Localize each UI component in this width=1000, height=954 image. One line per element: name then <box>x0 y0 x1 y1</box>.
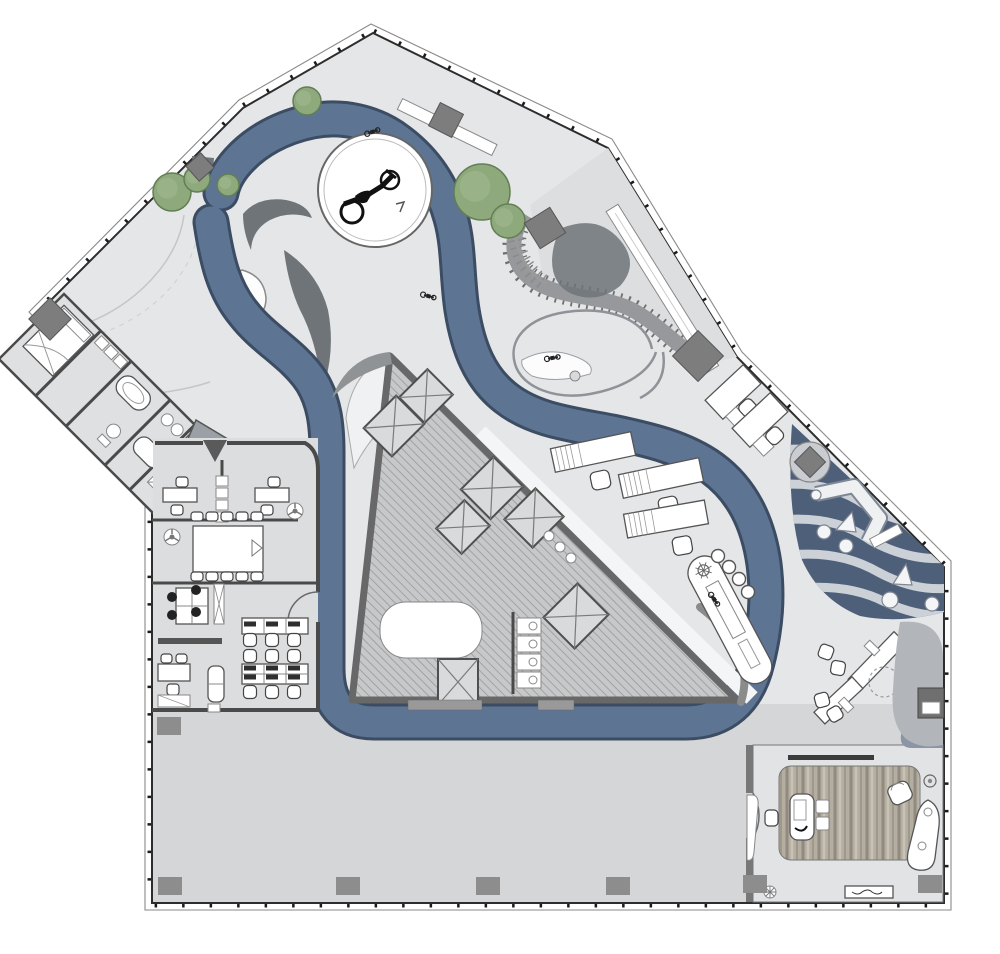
display-platform <box>318 133 432 247</box>
sofa-cushion-1 <box>924 808 932 816</box>
wc-stall <box>517 636 541 652</box>
office1-desk <box>163 488 197 502</box>
stool <box>712 550 725 563</box>
garden-stone <box>882 592 898 608</box>
office1-chair-a <box>176 477 188 487</box>
office2-desk <box>255 488 289 502</box>
wc-stall <box>517 672 541 688</box>
hall-column <box>743 875 767 893</box>
monitor <box>266 675 278 680</box>
wc-stall <box>517 654 541 670</box>
small-exec-desk <box>158 664 190 681</box>
meeting-chair <box>221 572 233 581</box>
task-chair <box>244 686 257 699</box>
floor-plan-svg <box>0 0 1000 954</box>
small-exec-chair-b <box>176 654 187 663</box>
monitor <box>244 666 256 671</box>
monitor <box>244 622 256 627</box>
counter-wall <box>158 638 222 644</box>
tree-icon <box>217 174 239 196</box>
meeting-chair <box>236 512 248 521</box>
meeting-chair <box>251 512 263 521</box>
hall-column <box>157 717 181 735</box>
stool <box>723 561 736 574</box>
fan-icon-1 <box>287 503 303 519</box>
wc-stall <box>517 618 541 634</box>
office-block <box>152 438 318 712</box>
task-chair <box>244 634 257 647</box>
door-sill-2 <box>538 700 574 710</box>
meeting-chair <box>191 512 203 521</box>
task-chair <box>244 650 257 663</box>
exec-side-table-1 <box>816 800 829 813</box>
meeting-chair <box>191 572 203 581</box>
exec-left-wall <box>746 745 753 793</box>
tree-icon <box>293 87 321 115</box>
equipment-nook-floor <box>893 622 944 747</box>
task-chair <box>266 634 279 647</box>
sofa-cushion-2 <box>918 842 926 850</box>
hall-column <box>336 877 360 895</box>
monitor <box>288 675 300 680</box>
cluster-chair <box>191 585 201 595</box>
fan-icon-2 <box>164 529 180 545</box>
exec-floor-lamp-core <box>928 779 932 783</box>
office2-chair-a <box>268 477 280 487</box>
floor-plan-page <box>0 0 1000 954</box>
hall-column <box>476 877 500 895</box>
lounge-room <box>380 602 482 658</box>
garden-stone <box>839 539 853 553</box>
hall-column <box>606 877 630 895</box>
cluster-chair <box>167 592 177 602</box>
stool <box>733 573 746 586</box>
monitor <box>288 622 300 627</box>
office1-chair-b <box>171 505 183 515</box>
task-chair <box>288 634 301 647</box>
small-exec-chair-a <box>161 654 172 663</box>
elevator-car <box>438 659 478 705</box>
task-chair <box>266 686 279 699</box>
exec-top-wall <box>788 755 874 760</box>
garden-stone <box>925 597 939 611</box>
pond-stone <box>570 371 580 381</box>
meeting-chair <box>206 572 218 581</box>
hall-column <box>918 875 942 893</box>
cluster-chair <box>167 610 177 620</box>
monitor <box>266 622 278 627</box>
door-sill-1 <box>408 700 482 710</box>
side-table <box>208 704 220 712</box>
exec-side-table-2 <box>816 817 829 830</box>
task-chair <box>266 650 279 663</box>
meeting-chair <box>206 512 218 521</box>
hall-column <box>158 877 182 895</box>
meeting-chair <box>236 572 248 581</box>
garden-stone <box>817 525 831 539</box>
garden-stone <box>811 490 821 500</box>
monitor <box>288 666 300 671</box>
task-chair <box>288 686 301 699</box>
task-chair <box>288 650 301 663</box>
meeting-chair <box>221 512 233 521</box>
exec-chair <box>765 810 778 826</box>
small-exec-chair-c <box>167 684 179 695</box>
cluster-chair <box>191 607 201 617</box>
tree-icon <box>491 204 525 238</box>
monitor <box>266 666 278 671</box>
meeting-chair <box>251 572 263 581</box>
monitor <box>244 675 256 680</box>
stool <box>742 586 755 599</box>
equipment-tray <box>922 702 940 714</box>
